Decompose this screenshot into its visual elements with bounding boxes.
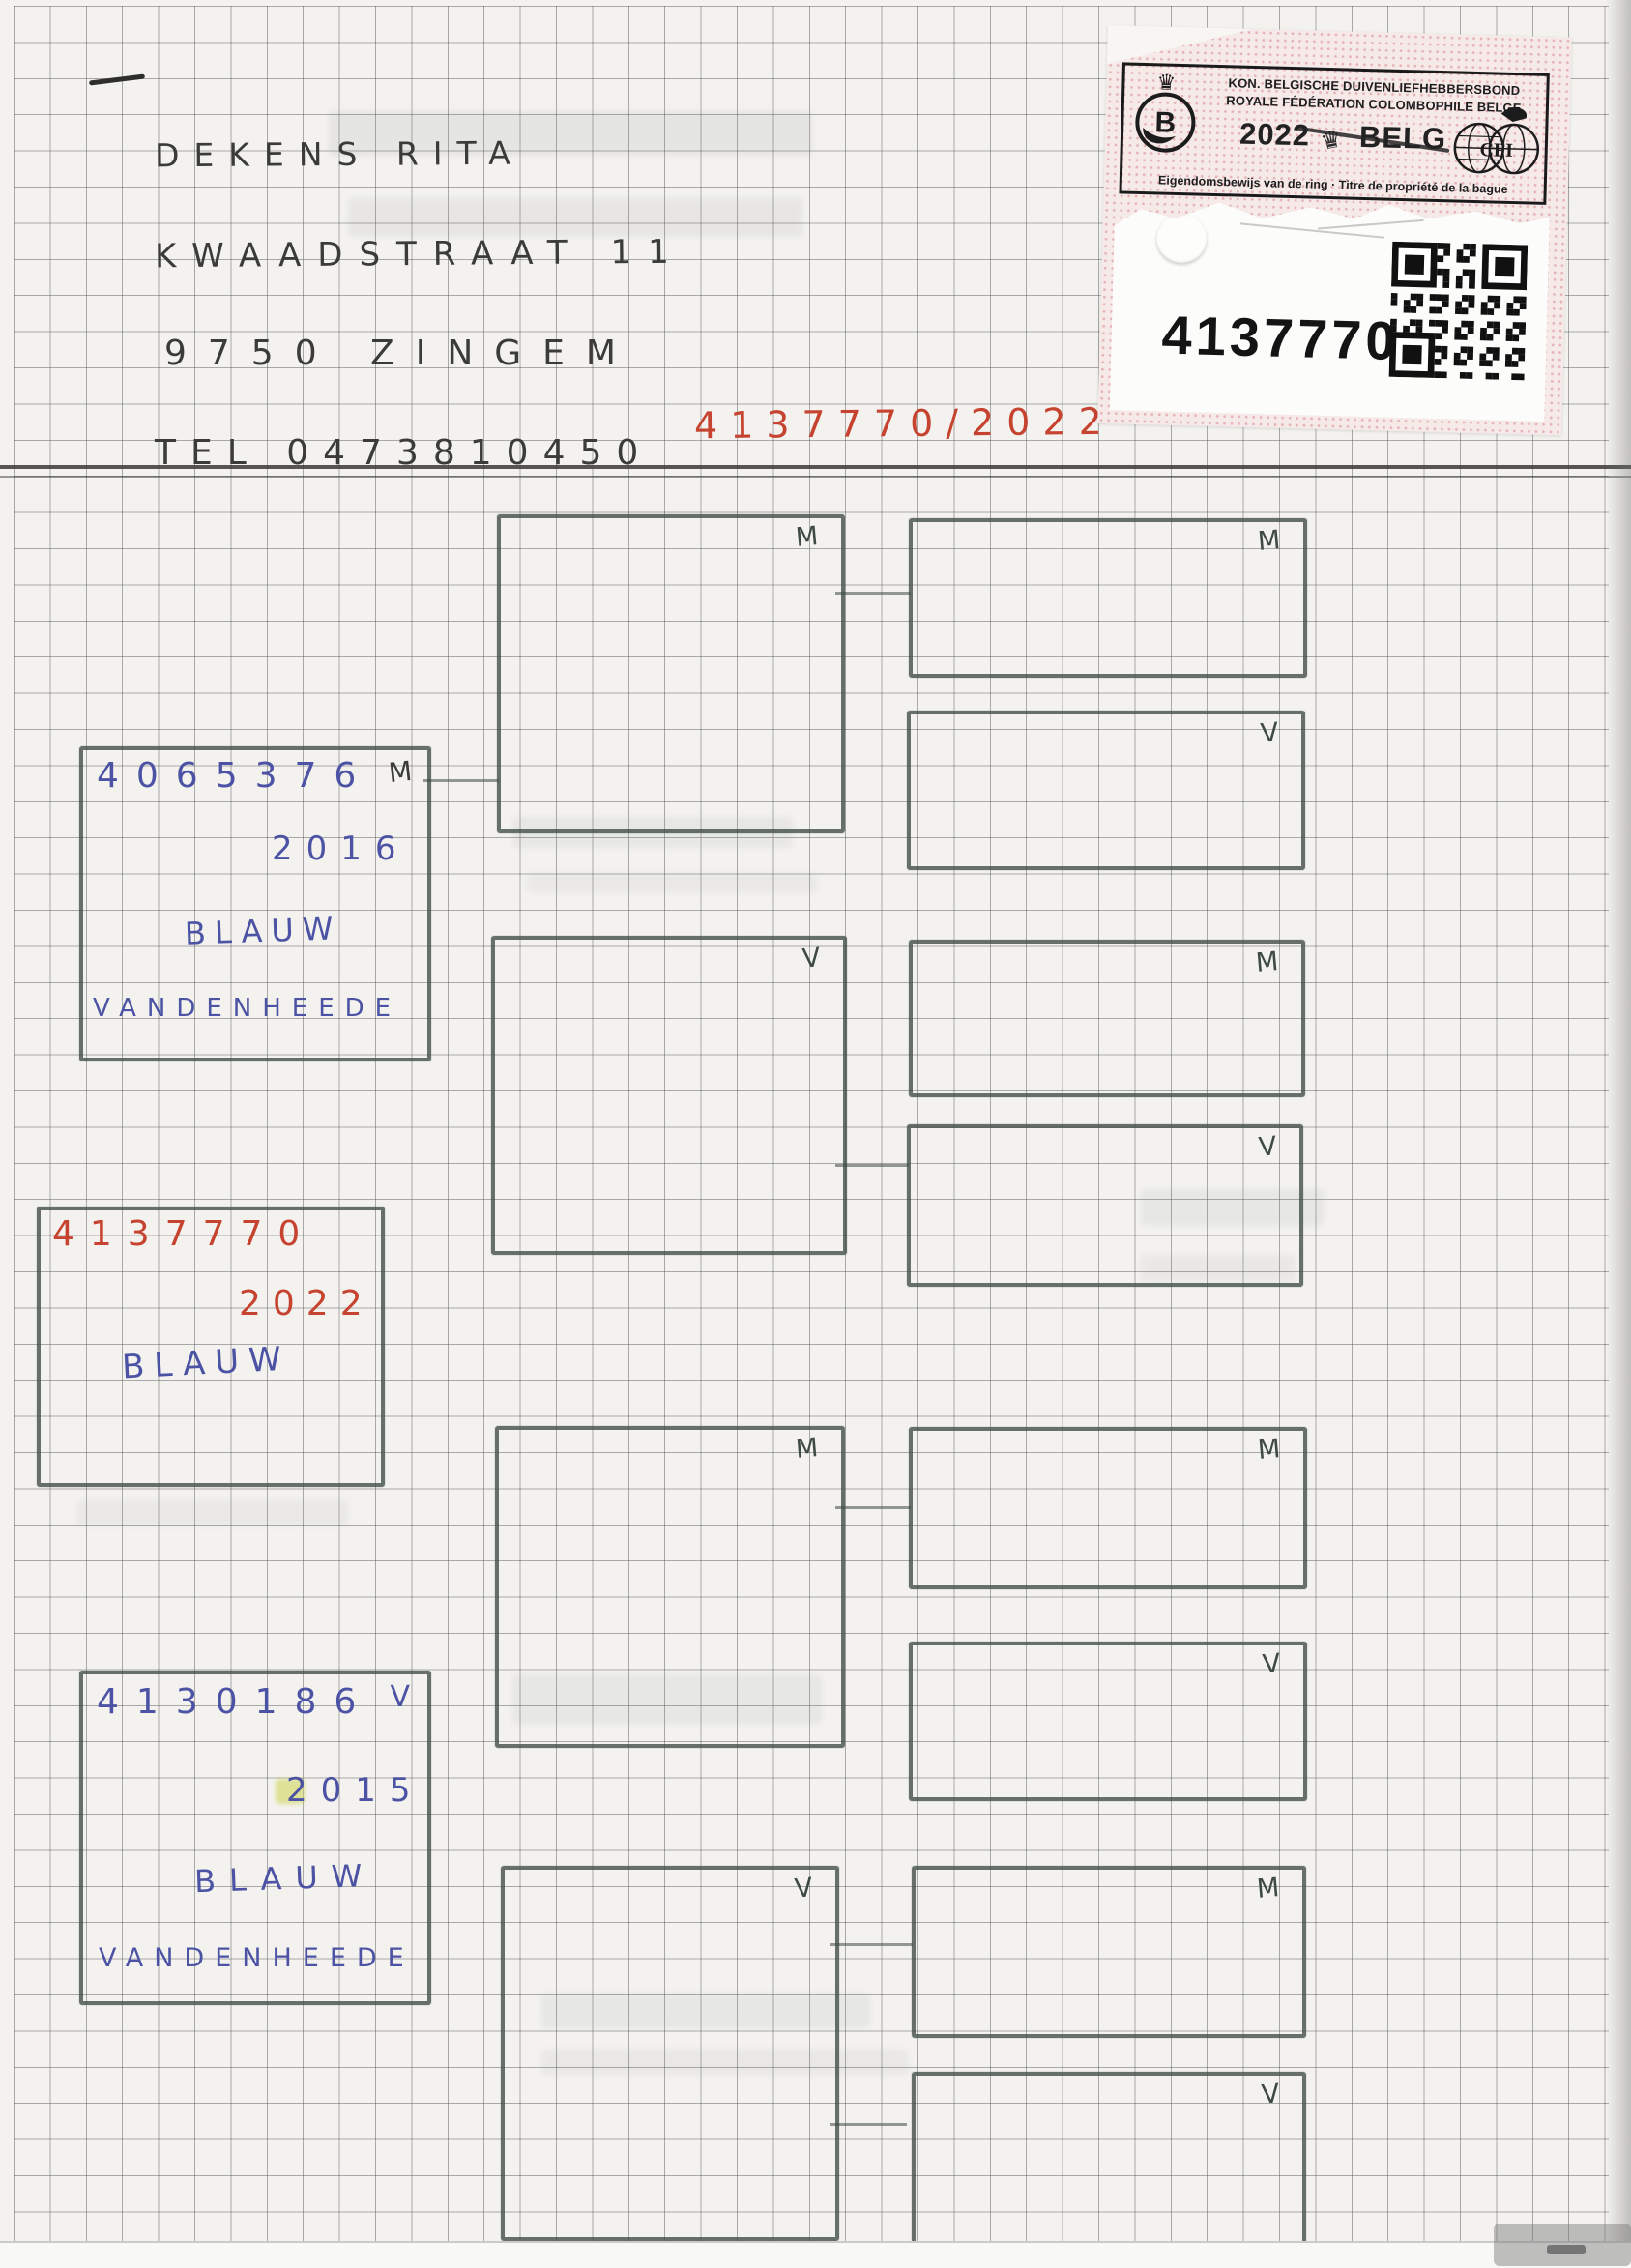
ghost-smudge bbox=[348, 198, 802, 237]
sticker-white-panel: 4137770 bbox=[1110, 195, 1551, 422]
owner-street: KWAADSTRAAT 11 bbox=[155, 233, 685, 276]
gen3-4-sex: V bbox=[1257, 1131, 1277, 1162]
owner-city: 9750 ZINGEM bbox=[164, 334, 637, 373]
federation-logo-icon: ♛ B bbox=[1128, 68, 1202, 162]
header-rule-heavy bbox=[0, 465, 1631, 469]
gen2-4-sex: V bbox=[793, 1873, 813, 1904]
connector-line bbox=[423, 779, 499, 782]
dam-breeder: VANDENHEEDE bbox=[99, 1943, 415, 1973]
header-rule-light bbox=[0, 476, 1631, 478]
dam-year: 2015 bbox=[286, 1771, 424, 1810]
pedigree-box-dam: 4130186 V 2015 BLAUW VANDENHEEDE bbox=[79, 1671, 431, 2005]
pedigree-box-gen2-4: V bbox=[501, 1866, 839, 2241]
pedigree-box-gen3-6: V bbox=[909, 1642, 1307, 1801]
pedigree-box-subject: 4137770 2022 BLAUW bbox=[37, 1207, 385, 1487]
sticker-torn-corner bbox=[1107, 25, 1253, 68]
subject-ring: 4137770 bbox=[52, 1214, 315, 1254]
pedigree-box-gen2-2: V bbox=[491, 936, 847, 1255]
sire-breeder: VANDENHEEDE bbox=[93, 994, 401, 1023]
paper-hole bbox=[1156, 214, 1208, 263]
crown-icon: ♛ bbox=[1156, 71, 1176, 96]
sire-sex: M bbox=[387, 755, 413, 789]
dam-color: BLAUW bbox=[193, 1857, 376, 1901]
gen2-1-sex: M bbox=[794, 521, 819, 553]
connector-line bbox=[835, 592, 911, 595]
sticker-year: 2022 bbox=[1239, 117, 1311, 154]
pedigree-box-gen3-2: V bbox=[907, 711, 1305, 870]
logo-letters: CFI bbox=[1479, 139, 1513, 161]
paper-crease bbox=[1318, 219, 1424, 230]
connector-line bbox=[835, 1164, 909, 1167]
globes-logo-icon: CFI bbox=[1449, 101, 1544, 184]
dam-sex: V bbox=[390, 1680, 410, 1714]
connector-line bbox=[830, 2123, 907, 2126]
logo-letter: B bbox=[1154, 106, 1177, 139]
ghost-smudge bbox=[527, 873, 817, 892]
gen3-2-sex: V bbox=[1259, 717, 1279, 748]
scan-edge-shadow bbox=[0, 2241, 1631, 2268]
gen3-5-sex: M bbox=[1256, 1434, 1281, 1466]
pigeon-icon bbox=[1501, 107, 1528, 123]
pedigree-box-gen3-5: M bbox=[909, 1427, 1307, 1589]
scan-edge-shadow bbox=[1606, 0, 1631, 2266]
owner-name: DEKENS RITA bbox=[155, 134, 525, 175]
gen3-3-sex: M bbox=[1254, 946, 1279, 978]
pedigree-box-gen3-3: M bbox=[909, 940, 1305, 1097]
sticker-ring-number: 4137770 bbox=[1161, 304, 1401, 372]
gen2-2-sex: V bbox=[801, 943, 821, 974]
gen3-6-sex: V bbox=[1261, 1648, 1281, 1679]
dam-ring: 4130186 bbox=[97, 1682, 373, 1722]
sire-ring: 4065376 bbox=[97, 756, 373, 796]
subject-color: BLAUW bbox=[121, 1339, 292, 1386]
pedigree-box-sire: 4065376 M 2016 BLAUW VANDENHEEDE bbox=[79, 746, 431, 1061]
sire-year: 2016 bbox=[272, 829, 410, 868]
pedigree-box-gen3-8: V bbox=[912, 2072, 1306, 2255]
connector-line bbox=[835, 1506, 911, 1509]
subject-year: 2022 bbox=[239, 1284, 374, 1323]
pedigree-box-gen2-1: M bbox=[497, 514, 845, 833]
sire-color: BLAUW bbox=[184, 910, 342, 952]
gen3-7-sex: M bbox=[1255, 1873, 1280, 1905]
scan-speck bbox=[1547, 2245, 1586, 2254]
connector-line bbox=[830, 1943, 913, 1946]
pedigree-box-gen3-7: M bbox=[912, 1866, 1306, 2038]
ghost-smudge bbox=[77, 1500, 348, 1526]
qr-code bbox=[1389, 242, 1529, 381]
gen3-8-sex: V bbox=[1260, 2079, 1280, 2109]
pedigree-box-gen3-1: M bbox=[909, 518, 1307, 678]
pedigree-box-gen3-4: V bbox=[907, 1124, 1303, 1287]
ring-ownership-sticker: ♛ B KON. BELGISCHE DUIVENLIEFHEBBERSBOND… bbox=[1097, 25, 1572, 435]
pedigree-box-gen2-3: M bbox=[495, 1426, 845, 1748]
sticker-frame: ♛ B KON. BELGISCHE DUIVENLIEFHEBBERSBOND… bbox=[1119, 62, 1549, 205]
ring-note-handwritten: 4137770/2022 bbox=[694, 400, 1115, 448]
gen3-1-sex: M bbox=[1256, 525, 1281, 557]
gen2-3-sex: M bbox=[794, 1433, 819, 1465]
